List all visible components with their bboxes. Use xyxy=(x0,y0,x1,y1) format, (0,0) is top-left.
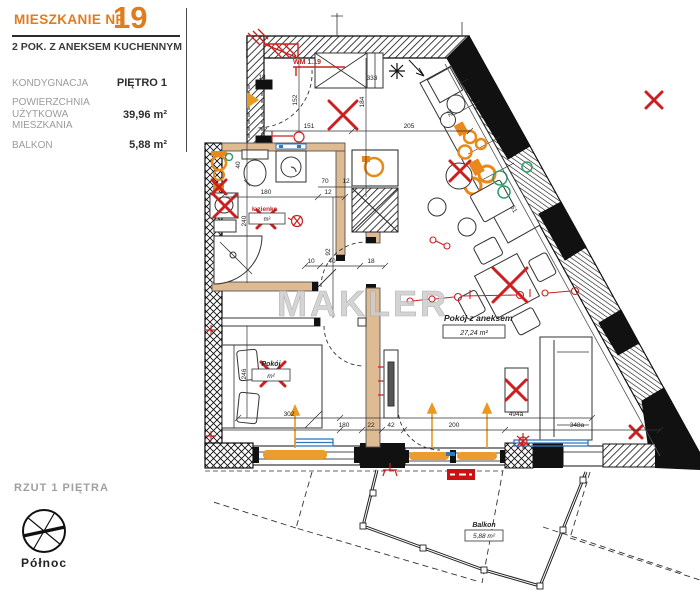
dim-label: 18 xyxy=(367,258,375,265)
vertical-divider xyxy=(186,8,187,152)
cabinet xyxy=(214,220,236,232)
row-label-balkon: BALKON xyxy=(12,140,117,152)
bottom-wall-windows xyxy=(205,443,700,471)
lamp-symbol xyxy=(389,63,405,79)
stool xyxy=(458,218,476,236)
window-sill xyxy=(409,452,449,460)
dim-label: 70 xyxy=(321,178,329,185)
dim-label: 152 xyxy=(292,94,299,105)
dim-label: 205 xyxy=(404,123,415,130)
room-area-balkon: 5,88 m² xyxy=(473,533,496,540)
row-label-powierzchnia: POWIERZCHNIA UŻYTKOWA MIESZKANIA xyxy=(12,97,117,132)
dim-label: 12 xyxy=(342,178,350,185)
dim-label: 10 xyxy=(307,258,315,265)
dim-label: 22 xyxy=(367,422,375,429)
dim-label: 12 xyxy=(324,189,332,196)
divider-rule xyxy=(12,35,180,37)
compass-label: Północ xyxy=(21,556,67,570)
floor-caption: RZUT 1 PIĘTRA xyxy=(14,482,109,494)
unit-label: WM 1.19 xyxy=(293,59,321,66)
dim-label: 92 xyxy=(325,248,332,256)
dim-label: 40 xyxy=(328,258,336,265)
dim-label: 18 xyxy=(258,74,266,81)
room-label-lazienka: łazienka xyxy=(252,206,278,213)
room-label-balkon: Balkon xyxy=(472,522,495,529)
balcony xyxy=(210,470,700,589)
bedroom-door-arc xyxy=(324,326,364,366)
dim-label: 180 xyxy=(339,422,350,429)
info-panel: MIESZKANIE NR 19 2 POK. Z ANEKSEM KUCHEN… xyxy=(0,0,195,598)
apartment-number: 19 xyxy=(113,0,147,36)
window-sill xyxy=(457,452,497,460)
toilet-tank xyxy=(242,150,268,159)
dim-label: 42 xyxy=(387,422,395,429)
dim-label: 40 xyxy=(235,161,242,169)
room-area-lazienka: m² xyxy=(264,217,271,223)
dim-label: 302 xyxy=(284,411,295,418)
room-area-pokoj: m² xyxy=(267,373,275,380)
row-label-kondygnacja: KONDYGNACJA xyxy=(12,78,117,90)
dim-label: 180 xyxy=(261,189,272,196)
round-table xyxy=(446,163,472,189)
dim-label: 184 xyxy=(359,96,366,107)
dim-label: 200 xyxy=(449,422,460,429)
dim-label: 151 xyxy=(304,123,315,130)
pillow xyxy=(236,392,259,424)
apartment-subtitle: 2 POK. Z ANEKSEM KUCHENNYM xyxy=(12,41,182,53)
tv xyxy=(388,362,394,406)
watermark: MAKLER xyxy=(277,283,449,324)
window-sill xyxy=(263,450,327,459)
room-label-pokoj: Pokój xyxy=(261,361,281,368)
apartment-title-label: MIESZKANIE NR xyxy=(14,12,126,27)
room-label-aneks: Pokój z aneksem xyxy=(444,313,513,323)
dim-label: 333 xyxy=(367,75,378,82)
row-value-balkon: 5,88 m² xyxy=(129,139,167,151)
dim-label: 246 xyxy=(241,368,248,379)
dim-label: 240 xyxy=(241,215,248,226)
hall-wardrobe xyxy=(315,53,383,88)
dim-label: 348a xyxy=(570,422,585,429)
row-value-kondygnacja: PIĘTRO 1 xyxy=(117,77,167,89)
stool xyxy=(428,198,446,216)
dim-label: 494a xyxy=(509,411,524,418)
room-area-aneks: 27,24 m² xyxy=(459,330,488,337)
shaft-block xyxy=(352,150,398,232)
row-value-powierzchnia: 39,96 m² xyxy=(123,109,167,121)
bedroom-furniture xyxy=(222,345,322,428)
floorplan-page: 151 205 333 152 184 72 51 180 12 40 240 … xyxy=(0,0,700,598)
